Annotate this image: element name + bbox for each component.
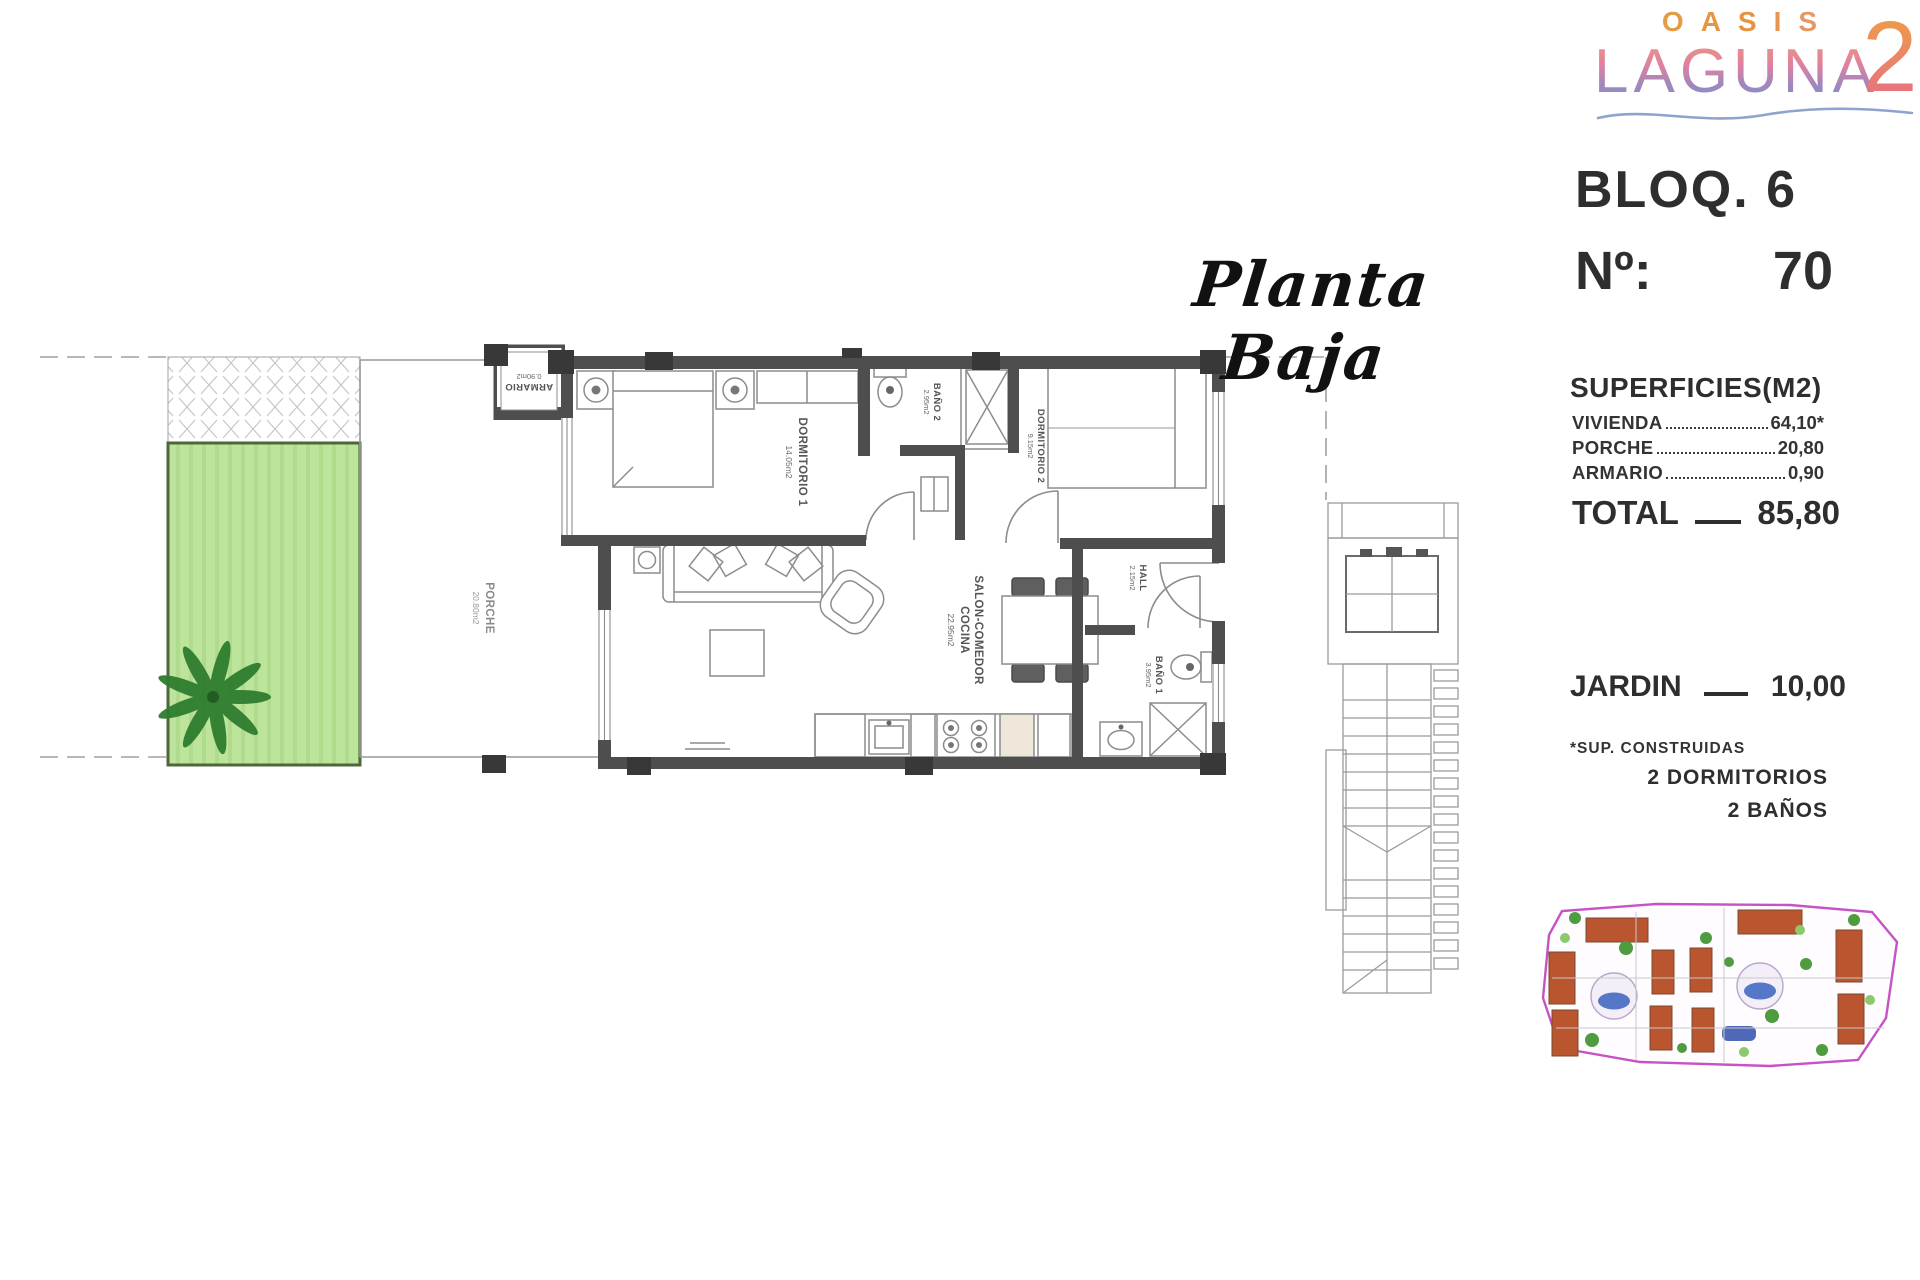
jardin-value: 10,00 — [1771, 670, 1846, 704]
block-title: BLOQ. 6 — [1575, 160, 1797, 220]
room-area: 22.95m2 — [946, 575, 956, 684]
room-name: HALL — [1137, 565, 1148, 592]
floorplan-sheet: DORMITORIO 1 14.05m2 BAÑO 2 2.95m2 DORMI… — [0, 0, 1920, 1280]
surface-label: ARMARIO — [1572, 462, 1663, 484]
brand-laguna: LAGUNA — [1594, 36, 1879, 107]
room-label-dormitorio-1: DORMITORIO 1 14.05m2 — [784, 418, 808, 507]
surface-value: 20,80 — [1778, 437, 1824, 459]
jardin-label: JARDIN — [1570, 670, 1682, 704]
furniture — [577, 365, 1212, 757]
total-label: TOTAL — [1572, 494, 1679, 532]
room-name: PORCHE — [481, 582, 495, 634]
surface-label: PORCHE — [1572, 437, 1654, 459]
surfaces-title: SUPERFICIES(M2) — [1570, 372, 1822, 404]
dotted-leader — [1666, 477, 1785, 479]
feature-dormitorios: 2 DORMITORIOS — [1560, 766, 1828, 790]
room-area: 9.15m2 — [1026, 409, 1035, 483]
total-value: 85,80 — [1757, 494, 1840, 532]
surfaces-footnote: *SUP. CONSTRUIDAS — [1570, 740, 1745, 758]
room-name-line2: COCINA — [956, 575, 970, 684]
unit-features: 2 DORMITORIOS 2 BAÑOS — [1560, 766, 1828, 832]
room-area: 2.15m2 — [1128, 565, 1137, 592]
hatched-area — [168, 357, 360, 443]
brand-logo: OASIS LAGUNA 2 — [1592, 6, 1920, 131]
room-name-line1: SALON-COMEDOR — [970, 575, 984, 684]
garden-area — [156, 443, 360, 765]
room-name: DORMITORIO 1 — [794, 418, 808, 507]
total-row: TOTAL 85,80 — [1572, 494, 1840, 532]
brand-numeral: 2 — [1862, 0, 1918, 115]
plan-title: Planta Baja — [1100, 248, 1515, 394]
jardin-underscore — [1704, 668, 1748, 696]
room-label-hall: HALL 2.15m2 — [1128, 565, 1148, 592]
surface-row-vivienda: VIVIENDA 64,10* — [1572, 412, 1824, 437]
surface-label: VIVIENDA — [1572, 412, 1663, 434]
unit-number-row: Nº: 70 — [1575, 240, 1859, 302]
surface-row-armario: ARMARIO 0,90 — [1572, 462, 1824, 487]
dotted-leader — [1666, 427, 1768, 429]
site-plan — [1543, 904, 1897, 1066]
room-area: 0.90m2 — [505, 372, 553, 381]
room-label-bano-1: BAÑO 1 3.95m2 — [1144, 656, 1164, 694]
stairwell — [1326, 503, 1458, 993]
room-name: BAÑO 1 — [1153, 656, 1164, 694]
surface-value: 0,90 — [1788, 462, 1824, 484]
feature-banos: 2 BAÑOS — [1560, 799, 1828, 823]
surface-value: 64,10* — [1771, 412, 1825, 434]
surface-row-porche: PORCHE 20,80 — [1572, 437, 1824, 462]
unit-number-prefix: Nº: — [1575, 240, 1652, 302]
stair-comb — [1434, 670, 1458, 969]
jardin-row: JARDIN 10,00 — [1570, 668, 1846, 704]
dotted-leader — [1657, 452, 1775, 454]
total-underscore — [1695, 494, 1741, 524]
brand-oasis: OASIS — [1628, 6, 1868, 38]
unit-number-value: 70 — [1773, 240, 1833, 302]
room-name: ARMARIO — [505, 381, 553, 392]
room-name: DORMITORIO 2 — [1035, 409, 1046, 483]
room-label-bano-2: BAÑO 2 2.95m2 — [922, 383, 942, 421]
room-label-dormitorio-2: DORMITORIO 2 9.15m2 — [1026, 409, 1046, 483]
room-area: 14.05m2 — [784, 418, 794, 507]
room-label-porche: PORCHE 20.80m2 — [471, 582, 495, 634]
room-area: 2.95m2 — [922, 383, 931, 421]
brand-wave-icon — [1596, 102, 1916, 128]
room-area: 3.95m2 — [1144, 656, 1153, 694]
room-area: 20.80m2 — [471, 582, 481, 634]
surfaces-table: VIVIENDA 64,10* PORCHE 20,80 ARMARIO 0,9… — [1572, 412, 1824, 487]
room-label-salon: SALON-COMEDOR COCINA 22.95m2 — [946, 575, 984, 684]
room-label-armario: ARMARIO 0.90m2 — [505, 372, 553, 392]
room-name: BAÑO 2 — [931, 383, 942, 421]
